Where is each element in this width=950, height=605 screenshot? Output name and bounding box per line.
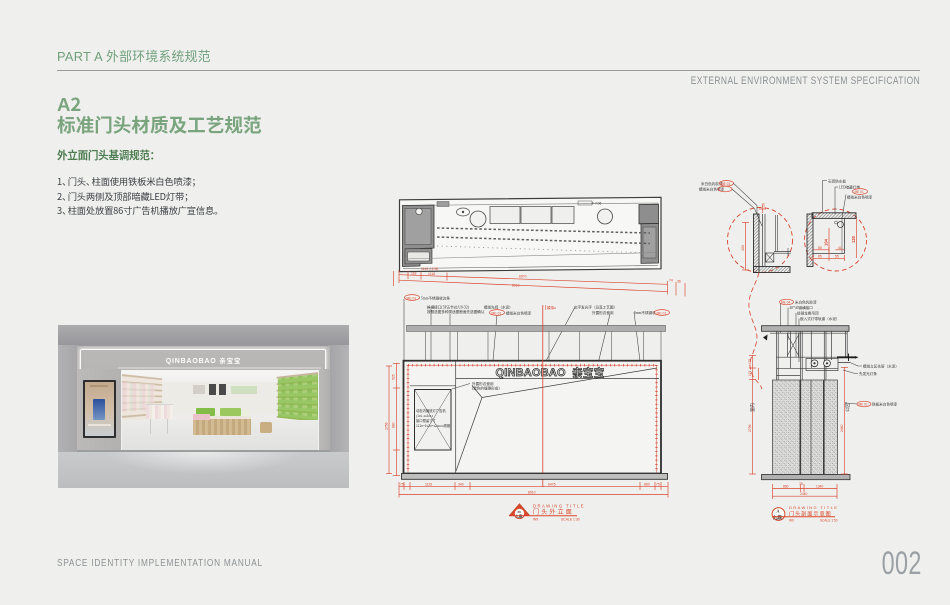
svg-text:SCALE 1:50: SCALE 1:50 [820, 518, 838, 522]
svg-text:121: 121 [748, 370, 752, 376]
svg-text:525: 525 [392, 374, 396, 380]
svg-text:1118: 1118 [428, 272, 435, 276]
svg-text:铁板米白色喷漆: 铁板米白色喷漆 [872, 402, 898, 408]
svg-text:1115: 1115 [425, 483, 432, 487]
svg-text:A: A [777, 509, 780, 515]
svg-text:6475: 6475 [548, 483, 556, 487]
svg-text:SCALE 1:30: SCALE 1:30 [561, 518, 580, 522]
svg-text:ME 01: ME 01 [855, 190, 864, 194]
svg-text:ME 01: ME 01 [492, 311, 502, 315]
svg-text:模拟米白色喷漆: 模拟米白色喷漆 [847, 195, 873, 201]
svg-text:2756: 2756 [385, 422, 389, 430]
svg-text:6970: 6970 [519, 275, 527, 279]
svg-text:ME 01: ME 01 [407, 296, 417, 300]
svg-text:2440: 2440 [800, 492, 808, 496]
svg-text:模拟a: 模拟a [547, 305, 556, 311]
svg-text:先发光灯条: 先发光灯条 [859, 371, 877, 377]
svg-text:131: 131 [748, 358, 752, 364]
svg-text:亲宝宝: 亲宝宝 [572, 364, 605, 380]
svg-text:8910: 8910 [512, 284, 520, 288]
svg-text:8910: 8910 [528, 490, 536, 494]
svg-text:模拟米白色喷漆: 模拟米白色喷漆 [506, 311, 532, 317]
svg-text:340: 340 [458, 483, 464, 487]
svg-text:室内: 室内 [749, 403, 756, 412]
svg-text:104: 104 [824, 238, 829, 246]
svg-text:ME 01: ME 01 [721, 182, 730, 186]
svg-text:DRAWING TITLE: DRAWING TITLE [789, 505, 838, 510]
svg-text:5mm不锈钢收边条: 5mm不锈钢收边条 [421, 296, 450, 302]
svg-text:(黑色的缝隙形成): (黑色的缝隙形成) [472, 386, 500, 392]
svg-text:75: 75 [799, 482, 803, 486]
svg-text:75: 75 [400, 483, 404, 487]
svg-text:16: 16 [762, 203, 766, 207]
svg-text:轻钢龙骨吊顶: 轻钢龙骨吊顶 [797, 311, 819, 317]
svg-text:按照选图多种类适图断面先选图确认: 按照选图多种类适图断面先选图确认 [427, 309, 485, 315]
svg-text:1340: 1340 [816, 484, 824, 488]
svg-text:模拟米白色喷漆: 模拟米白色喷漆 [699, 187, 725, 193]
svg-text:嵌入式灯带轨道（水泥）: 嵌入式灯带轨道（水泥） [800, 316, 840, 322]
svg-text:2756: 2756 [748, 424, 752, 432]
svg-text:W9: W9 [789, 518, 794, 522]
svg-text:门头外立面: 门头外立面 [533, 507, 574, 516]
svg-text:模拟先择（水泥）: 模拟先择（水泥） [484, 305, 513, 311]
svg-text:石膏防水板: 石膏防水板 [828, 178, 846, 184]
svg-text:外露形边使用: 外露形边使用 [592, 310, 614, 316]
svg-text:米白色乳胶漆: 米白色乳胶漆 [795, 300, 817, 306]
svg-text:118: 118 [411, 272, 417, 276]
svg-text:41: 41 [838, 246, 842, 250]
svg-text:文字发光字（见真工艺图）: 文字发光字（见真工艺图） [574, 305, 617, 311]
svg-text:120: 120 [851, 235, 856, 243]
svg-text:2440: 2440 [840, 424, 844, 432]
svg-text:880: 880 [392, 422, 396, 428]
svg-text:公区: 公区 [845, 403, 851, 412]
svg-text:ME 01: ME 01 [859, 403, 868, 407]
svg-text:85: 85 [818, 254, 822, 258]
svg-text:模拟立区先层（水泥）: 模拟立区先层（水泥） [863, 364, 899, 370]
svg-text:75: 75 [656, 483, 660, 487]
svg-text:85: 85 [818, 246, 822, 250]
svg-text:100: 100 [741, 245, 745, 251]
svg-text:55: 55 [835, 254, 839, 258]
svg-text:F-7.06: F-7.06 [592, 202, 601, 206]
svg-text:860: 860 [644, 483, 650, 487]
svg-text:74: 74 [669, 279, 673, 283]
svg-text:ME 01: ME 01 [657, 311, 667, 315]
svg-text:W9: W9 [533, 518, 538, 522]
svg-text:1115 J 2.56: 1115 J 2.56 [421, 267, 438, 271]
svg-text:QINBAOBAO: QINBAOBAO [496, 367, 566, 379]
svg-text:860: 860 [783, 484, 789, 488]
svg-text:ME 04: ME 04 [781, 301, 790, 305]
svg-text:门头剖面示意图: 门头剖面示意图 [789, 509, 832, 517]
svg-text:40*40钢横接口: 40*40钢横接口 [790, 305, 814, 311]
svg-text:36: 36 [677, 280, 681, 284]
svg-text:1120*1920*420mm规格: 1120*1920*420mm规格 [416, 423, 451, 428]
